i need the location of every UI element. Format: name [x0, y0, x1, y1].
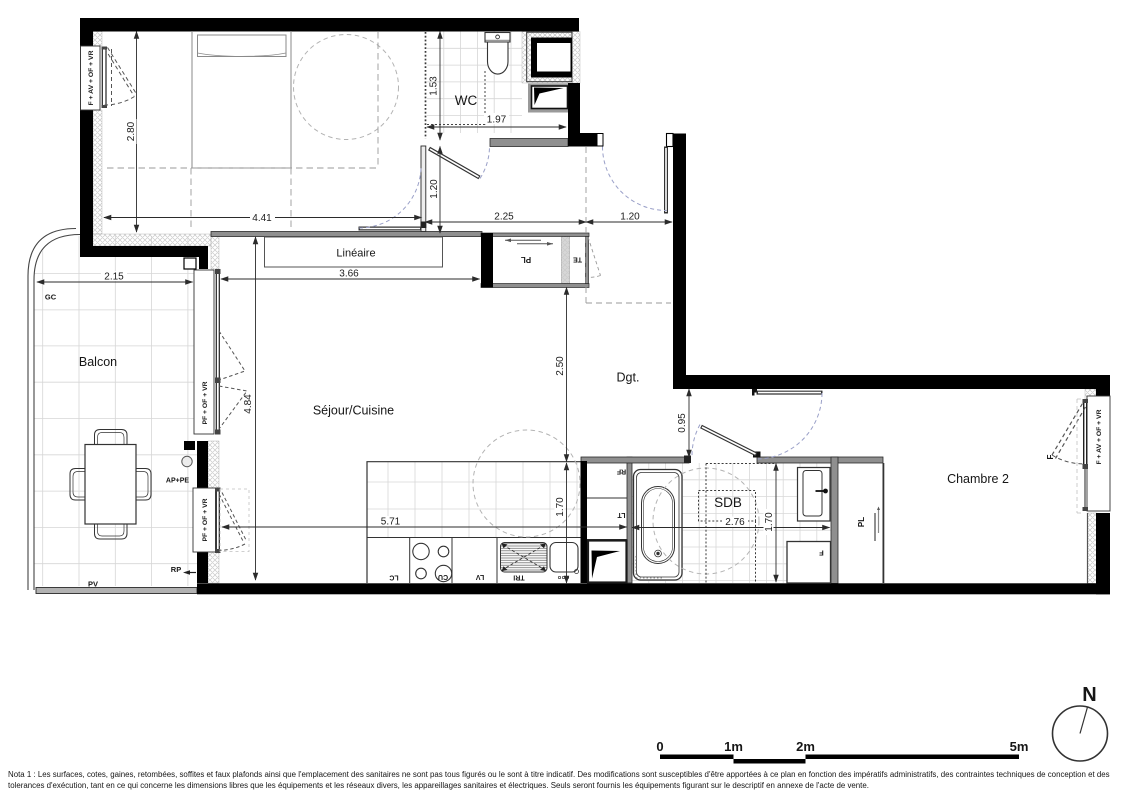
- svg-text:RP: RP: [171, 565, 181, 574]
- svg-text:LT: LT: [617, 511, 626, 518]
- svg-text:Dgt.: Dgt.: [617, 371, 640, 385]
- svg-text:AP+PE: AP+PE: [166, 478, 189, 485]
- svg-text:1.70: 1.70: [555, 497, 566, 517]
- svg-text:Linéaire: Linéaire: [336, 248, 375, 260]
- svg-text:PV: PV: [88, 580, 98, 589]
- svg-text:0: 0: [656, 739, 663, 754]
- svg-text:1.53: 1.53: [429, 76, 440, 96]
- svg-text:1m: 1m: [724, 739, 743, 754]
- svg-text:N: N: [1082, 684, 1096, 706]
- svg-text:PF + OF + VR: PF + OF + VR: [202, 381, 209, 424]
- svg-text:LV: LV: [475, 573, 484, 580]
- svg-text:2.76: 2.76: [725, 517, 745, 528]
- svg-text:WC: WC: [455, 93, 478, 108]
- svg-text:F: F: [819, 549, 824, 558]
- svg-text:SDB: SDB: [714, 495, 742, 510]
- svg-text:2.80: 2.80: [126, 121, 137, 141]
- svg-text:2.15: 2.15: [104, 272, 124, 283]
- svg-text:2.25: 2.25: [494, 212, 514, 223]
- svg-text:4.41: 4.41: [252, 213, 272, 224]
- svg-text:Balcon: Balcon: [79, 355, 117, 369]
- svg-text:PL: PL: [521, 255, 531, 264]
- svg-text:4.84: 4.84: [243, 394, 254, 414]
- svg-text:LC: LC: [389, 574, 398, 581]
- svg-text:Séjour/Cuisine: Séjour/Cuisine: [313, 404, 394, 418]
- svg-text:tolerances d'exécution, tant e: tolerances d'exécution, tant en ce qui c…: [8, 781, 869, 790]
- svg-text:GC: GC: [45, 293, 57, 302]
- svg-text:5m: 5m: [1010, 739, 1029, 754]
- svg-text:0.95: 0.95: [677, 413, 688, 433]
- svg-text:1.20: 1.20: [429, 179, 440, 199]
- svg-text:TE: TE: [573, 256, 582, 263]
- svg-text:1.97: 1.97: [487, 115, 507, 126]
- svg-text:PL: PL: [857, 517, 866, 527]
- svg-text:3.66: 3.66: [339, 269, 359, 280]
- svg-text:PF + OF + VR: PF + OF + VR: [202, 498, 209, 541]
- svg-text:5.71: 5.71: [381, 517, 401, 528]
- svg-text:RF: RF: [616, 468, 626, 475]
- svg-text:F: F: [1046, 454, 1055, 459]
- svg-text:CU: CU: [438, 573, 448, 580]
- svg-text:1.70: 1.70: [764, 512, 775, 532]
- svg-text:1.20: 1.20: [620, 212, 640, 223]
- svg-text:F + AV + OF + VR: F + AV + OF + VR: [1096, 409, 1103, 464]
- svg-text:Nota 1 : Les surfaces, cotes,: Nota 1 : Les surfaces, cotes, gaines, re…: [8, 770, 1110, 779]
- svg-text:TRI: TRI: [513, 574, 524, 581]
- svg-text:2.50: 2.50: [555, 356, 566, 376]
- svg-text:F + AV + OF + VR: F + AV + OF + VR: [88, 50, 95, 105]
- svg-text:2m: 2m: [796, 739, 815, 754]
- svg-text:Chambre 2: Chambre 2: [947, 472, 1009, 486]
